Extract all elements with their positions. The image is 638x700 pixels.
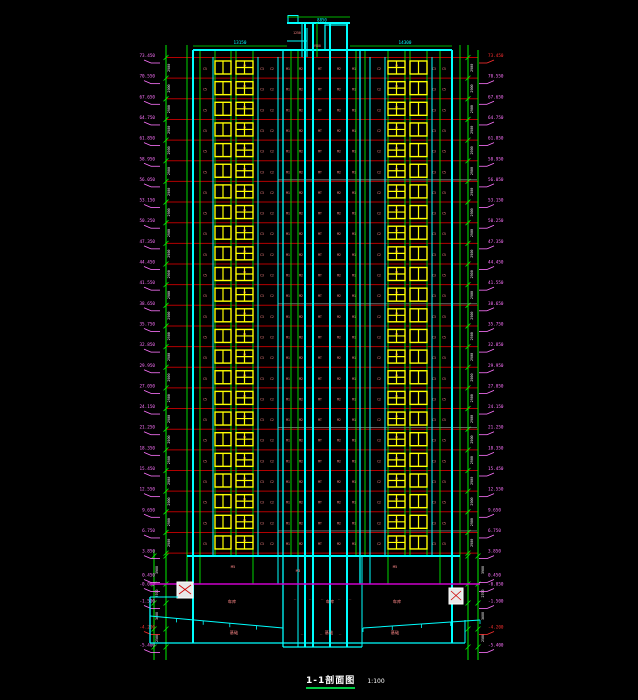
room-tag: M2 bbox=[299, 88, 303, 92]
room-tag: M1 bbox=[286, 356, 290, 360]
room-tag: C3 bbox=[432, 459, 436, 463]
window-tag: C4 bbox=[395, 167, 399, 171]
window-tag: C4 bbox=[395, 497, 399, 501]
room-tag: C3 bbox=[260, 129, 264, 133]
window-tag: C4 bbox=[243, 64, 247, 68]
room-tag: C3 bbox=[432, 315, 436, 319]
window-tag: C4 bbox=[395, 146, 399, 150]
level-value: 41.550 bbox=[139, 280, 155, 286]
room-tag: M1 bbox=[352, 150, 356, 154]
room-tag: M1 bbox=[286, 315, 290, 319]
bottom-dim-number: 3900 bbox=[481, 566, 485, 574]
room-tag: M2 bbox=[299, 459, 303, 463]
level-value: 12.550 bbox=[488, 487, 504, 493]
level-value: 18.350 bbox=[139, 445, 155, 451]
floor-dim-number: 2900 bbox=[167, 167, 171, 175]
room-tag: C3 bbox=[260, 294, 264, 298]
room-tag: C3 bbox=[260, 191, 264, 195]
window-tag: C4 bbox=[243, 146, 247, 150]
level-value: 64.750 bbox=[139, 115, 155, 121]
level-value: 32.850 bbox=[488, 342, 504, 348]
level-symbol bbox=[144, 328, 151, 331]
floor-dim-number: 2900 bbox=[470, 435, 474, 443]
level-symbol bbox=[487, 473, 494, 476]
room-tag: M2 bbox=[337, 88, 341, 92]
room-tag: C2 bbox=[377, 212, 381, 216]
room-tag: C5 bbox=[442, 501, 446, 505]
room-tag: M1 bbox=[352, 212, 356, 216]
tiny-tag: ·· bbox=[337, 597, 341, 601]
level-symbol bbox=[144, 143, 151, 146]
floor-dim-number: 2900 bbox=[167, 373, 171, 381]
level-value: 29.950 bbox=[139, 363, 155, 369]
window-tag: C4 bbox=[395, 249, 399, 253]
room-tag: MT bbox=[318, 294, 322, 298]
window-tag: C4 bbox=[243, 415, 247, 419]
room-tag: C5 bbox=[442, 418, 446, 422]
room-tag: C3 bbox=[260, 335, 264, 339]
roof-tag: 2900 bbox=[313, 44, 321, 48]
room-tag: M1 bbox=[286, 191, 290, 195]
basement-tag: 车库 bbox=[228, 598, 236, 605]
room-tag: C5 bbox=[442, 377, 446, 381]
level-symbol bbox=[144, 349, 151, 352]
room-tag: M1 bbox=[286, 335, 290, 339]
level-value: 70.550 bbox=[139, 74, 155, 80]
level-value: 15.450 bbox=[139, 466, 155, 472]
level-value: 21.250 bbox=[488, 425, 504, 431]
room-tag: C3 bbox=[260, 108, 264, 112]
room-tag: M2 bbox=[299, 418, 303, 422]
floor-dim-number: 2900 bbox=[470, 497, 474, 505]
room-tag: C2 bbox=[270, 170, 274, 174]
room-tag: M2 bbox=[299, 315, 303, 319]
floor-dim-number: 2900 bbox=[167, 518, 171, 526]
level-symbol bbox=[487, 225, 494, 228]
level-value: 0.450 bbox=[142, 573, 155, 579]
bottom-dim-number: 3600 bbox=[155, 612, 159, 620]
room-tag: M1 bbox=[352, 108, 356, 112]
room-tag: M2 bbox=[337, 542, 341, 546]
room-tag: C3 bbox=[432, 212, 436, 216]
room-tag: M1 bbox=[352, 67, 356, 71]
room-tag: M2 bbox=[337, 480, 341, 484]
level-value: 38.650 bbox=[139, 301, 155, 307]
room-tag: M1 bbox=[286, 521, 290, 525]
basement-tag: 基础 bbox=[391, 629, 399, 636]
room-tag: M2 bbox=[337, 439, 341, 443]
level-symbol bbox=[144, 246, 151, 249]
room-tag: C5 bbox=[442, 335, 446, 339]
level-value: 73.450 bbox=[139, 53, 155, 59]
basement-group: 车库车库车库基础基础基础················ bbox=[150, 597, 480, 647]
window-tag: C4 bbox=[243, 394, 247, 398]
level-value: 0.450 bbox=[488, 573, 501, 579]
room-tag: MT bbox=[318, 480, 322, 484]
level-symbol bbox=[144, 432, 151, 435]
elevator-overrun-box bbox=[325, 25, 347, 50]
room-tag: C5 bbox=[442, 521, 446, 525]
podium-tag: M5 bbox=[393, 564, 398, 569]
window-tag: C4 bbox=[395, 311, 399, 315]
room-tag: C2 bbox=[377, 459, 381, 463]
room-tag: MT bbox=[318, 501, 322, 505]
room-tag: C3 bbox=[432, 108, 436, 112]
level-symbol bbox=[144, 514, 151, 517]
window-tag: C4 bbox=[395, 353, 399, 357]
level-symbol bbox=[487, 390, 494, 393]
room-tag: MT bbox=[318, 274, 322, 278]
room-tag: C5 bbox=[442, 232, 446, 236]
floor-dim-number: 2900 bbox=[470, 64, 474, 72]
parapet-dim-text: 14300 bbox=[399, 40, 412, 46]
room-tag: M1 bbox=[352, 129, 356, 133]
room-tag: M1 bbox=[352, 418, 356, 422]
room-tag: M1 bbox=[286, 232, 290, 236]
room-tag: M2 bbox=[337, 501, 341, 505]
room-tag: M1 bbox=[352, 88, 356, 92]
level-value: 50.250 bbox=[139, 218, 155, 224]
room-tag: C5 bbox=[203, 480, 207, 484]
room-tag: C5 bbox=[203, 397, 207, 401]
window-tag: C4 bbox=[395, 208, 399, 212]
level-value: 24.150 bbox=[488, 404, 504, 410]
bottom-dim-number: 3900 bbox=[155, 566, 159, 574]
room-tag: M2 bbox=[337, 377, 341, 381]
room-tag: MT bbox=[318, 377, 322, 381]
room-tag: C3 bbox=[432, 335, 436, 339]
level-value: 58.950 bbox=[139, 156, 155, 162]
bottom-dim-number: 3600 bbox=[481, 612, 485, 620]
floor-dim-number: 2900 bbox=[167, 435, 171, 443]
room-tag: M2 bbox=[299, 170, 303, 174]
room-tag: C2 bbox=[270, 397, 274, 401]
room-tag: C5 bbox=[203, 108, 207, 112]
room-tag: C5 bbox=[203, 377, 207, 381]
grade-line bbox=[150, 616, 283, 628]
level-symbol bbox=[144, 81, 151, 84]
level-value: 6.750 bbox=[488, 528, 501, 534]
room-tag: C3 bbox=[260, 521, 264, 525]
floor-dim-number: 2900 bbox=[470, 291, 474, 299]
floor-dim-number: 2900 bbox=[167, 477, 171, 485]
room-tag: MT bbox=[318, 191, 322, 195]
room-tag: C3 bbox=[432, 501, 436, 505]
level-symbol bbox=[487, 81, 494, 84]
room-tag: MT bbox=[318, 212, 322, 216]
room-tag: C2 bbox=[270, 335, 274, 339]
room-tag: M1 bbox=[352, 253, 356, 257]
level-value: 38.650 bbox=[488, 301, 504, 307]
level-symbol bbox=[487, 60, 494, 63]
window-tag: C4 bbox=[395, 105, 399, 109]
tiny-tag: ·· bbox=[338, 632, 342, 636]
tiny-tag: ·· bbox=[300, 632, 304, 636]
room-tag: C3 bbox=[432, 480, 436, 484]
room-tag: M1 bbox=[286, 150, 290, 154]
room-tag: M1 bbox=[286, 67, 290, 71]
room-tag: C2 bbox=[377, 274, 381, 278]
roof-dim-text: 8850 bbox=[317, 18, 327, 23]
room-tag: M1 bbox=[286, 253, 290, 257]
room-tag: MT bbox=[318, 521, 322, 525]
room-tag: M1 bbox=[352, 170, 356, 174]
room-tag: C2 bbox=[270, 108, 274, 112]
floor-dim-number: 2900 bbox=[167, 208, 171, 216]
window-tag: C4 bbox=[395, 229, 399, 233]
level-symbol bbox=[487, 556, 494, 559]
room-tag: M1 bbox=[286, 170, 290, 174]
cad-drawing-canvas[interactable]: 2900290029002900290029002900290029002900… bbox=[0, 0, 638, 700]
room-tag: M2 bbox=[299, 542, 303, 546]
floor-dim-number: 2900 bbox=[470, 188, 474, 196]
window-tag: C4 bbox=[395, 270, 399, 274]
level-value: 29.950 bbox=[488, 363, 504, 369]
room-tag: C3 bbox=[260, 501, 264, 505]
room-tag: C2 bbox=[377, 397, 381, 401]
room-tag: C2 bbox=[270, 439, 274, 443]
room-tag: C2 bbox=[270, 315, 274, 319]
level-value: 12.550 bbox=[139, 487, 155, 493]
room-tag: C5 bbox=[203, 439, 207, 443]
level-value: -1.500 bbox=[139, 599, 155, 605]
room-tag: C2 bbox=[270, 459, 274, 463]
floor-dim-number: 2900 bbox=[470, 518, 474, 526]
floor-dim-number: 2900 bbox=[167, 312, 171, 320]
level-symbol bbox=[144, 411, 151, 414]
level-symbol bbox=[487, 287, 494, 290]
room-tag: C5 bbox=[442, 459, 446, 463]
floor-dim-number: 2900 bbox=[167, 394, 171, 402]
room-tag: M1 bbox=[286, 294, 290, 298]
room-tag: M1 bbox=[352, 274, 356, 278]
level-symbol bbox=[487, 308, 494, 311]
room-tag: M1 bbox=[352, 294, 356, 298]
level-markers-left: 73.45070.55067.65064.75061.85058.95056.0… bbox=[139, 53, 160, 653]
room-tag: MT bbox=[318, 232, 322, 236]
room-tag: MT bbox=[318, 315, 322, 319]
room-tag: C5 bbox=[203, 542, 207, 546]
room-tag: M1 bbox=[286, 439, 290, 443]
room-tag: M2 bbox=[299, 397, 303, 401]
room-tag: C5 bbox=[203, 150, 207, 154]
tiny-tag: ·· bbox=[320, 597, 324, 601]
level-symbol bbox=[144, 60, 151, 63]
level-value: 24.150 bbox=[139, 404, 155, 410]
level-symbol bbox=[487, 349, 494, 352]
floor-dim-number: 2900 bbox=[470, 84, 474, 92]
room-tag: C2 bbox=[377, 88, 381, 92]
room-tag: C3 bbox=[432, 170, 436, 174]
level-value: 64.750 bbox=[488, 115, 504, 121]
level-symbol bbox=[144, 390, 151, 393]
bottom-dim-number: 2500 bbox=[155, 634, 159, 642]
window-tag: C4 bbox=[395, 477, 399, 481]
floor-dim-number: 2900 bbox=[470, 250, 474, 258]
podium-tag: M5 bbox=[231, 564, 236, 569]
room-tag: C5 bbox=[442, 480, 446, 484]
room-tag: M2 bbox=[299, 501, 303, 505]
room-tag: C5 bbox=[442, 356, 446, 360]
level-value: 50.250 bbox=[488, 218, 504, 224]
level-symbol bbox=[144, 163, 151, 166]
room-tag: C5 bbox=[442, 212, 446, 216]
level-value: 21.250 bbox=[139, 425, 155, 431]
basement-tag: 基础 bbox=[230, 629, 238, 636]
room-tag: C3 bbox=[260, 274, 264, 278]
level-value: 47.350 bbox=[139, 239, 155, 245]
tiny-tag: ·· bbox=[293, 597, 297, 601]
room-tag: C2 bbox=[377, 150, 381, 154]
level-value: 18.350 bbox=[488, 445, 504, 451]
room-tag: C3 bbox=[260, 150, 264, 154]
level-value: 3.850 bbox=[142, 549, 155, 555]
level-symbol bbox=[487, 184, 494, 187]
level-symbol bbox=[487, 514, 494, 517]
room-tag: C5 bbox=[442, 397, 446, 401]
floor-dim-number: 2900 bbox=[167, 270, 171, 278]
room-tag: C5 bbox=[203, 315, 207, 319]
window-tag: C4 bbox=[395, 332, 399, 336]
level-symbol bbox=[144, 267, 151, 270]
level-value: 35.750 bbox=[139, 321, 155, 327]
tiny-tag: ·· bbox=[348, 597, 352, 601]
window-tag: C4 bbox=[243, 518, 247, 522]
room-tag: C3 bbox=[260, 212, 264, 216]
room-tag: C3 bbox=[260, 480, 264, 484]
room-tag: MT bbox=[318, 253, 322, 257]
level-value: 41.550 bbox=[488, 280, 504, 286]
room-tag: C3 bbox=[432, 67, 436, 71]
floor-dim-number: 2900 bbox=[167, 291, 171, 299]
room-tag: C5 bbox=[203, 253, 207, 257]
room-tag: C2 bbox=[377, 501, 381, 505]
level-symbol bbox=[487, 452, 494, 455]
floor-dim-number: 2900 bbox=[470, 146, 474, 154]
basement-tag: 车库 bbox=[393, 598, 401, 605]
room-tag: M1 bbox=[286, 480, 290, 484]
drawing-title-text: 1-1剖面图 bbox=[306, 673, 355, 689]
room-tag: M2 bbox=[299, 212, 303, 216]
room-tag: C3 bbox=[432, 418, 436, 422]
room-tag: C2 bbox=[377, 356, 381, 360]
room-tag: C2 bbox=[377, 418, 381, 422]
floor-dim-number: 2900 bbox=[167, 415, 171, 423]
room-tag: C5 bbox=[203, 88, 207, 92]
room-tag: M1 bbox=[286, 129, 290, 133]
room-tag: M2 bbox=[299, 439, 303, 443]
room-tag: C5 bbox=[203, 418, 207, 422]
room-tag: M2 bbox=[337, 397, 341, 401]
room-tag: M2 bbox=[337, 294, 341, 298]
window-tag: C4 bbox=[243, 208, 247, 212]
podium-group: M5M3M5 bbox=[150, 564, 480, 604]
level-symbol bbox=[487, 411, 494, 414]
room-tag: C3 bbox=[260, 67, 264, 71]
room-tag: C3 bbox=[432, 397, 436, 401]
bottom-dim-number: 2700 bbox=[481, 590, 485, 598]
room-tag: M2 bbox=[337, 108, 341, 112]
room-tag: C2 bbox=[270, 418, 274, 422]
room-tag: C2 bbox=[377, 108, 381, 112]
room-tag: C5 bbox=[442, 253, 446, 257]
room-tag: C5 bbox=[203, 67, 207, 71]
room-tag: M2 bbox=[299, 521, 303, 525]
floor-dim-number: 2900 bbox=[470, 477, 474, 485]
room-tag: C3 bbox=[432, 542, 436, 546]
room-tag: M1 bbox=[352, 397, 356, 401]
room-tag: C2 bbox=[377, 521, 381, 525]
floor-dim-number: 2900 bbox=[167, 497, 171, 505]
window-tag: C4 bbox=[243, 84, 247, 88]
floor-dim-number: 2900 bbox=[470, 167, 474, 175]
level-symbol bbox=[487, 246, 494, 249]
level-value: 9.650 bbox=[488, 507, 501, 513]
room-tag: M2 bbox=[299, 335, 303, 339]
room-tag: C3 bbox=[432, 191, 436, 195]
room-tag: C5 bbox=[442, 542, 446, 546]
room-tag: C3 bbox=[260, 88, 264, 92]
room-tag: M2 bbox=[299, 67, 303, 71]
room-tag: M2 bbox=[337, 129, 341, 133]
podium-tag: M3 bbox=[296, 568, 301, 573]
room-tag: C5 bbox=[203, 212, 207, 216]
room-tag: M1 bbox=[352, 501, 356, 505]
floor-dim-number: 2900 bbox=[470, 126, 474, 134]
level-value: 35.750 bbox=[488, 321, 504, 327]
floor-dim-number: 2900 bbox=[470, 229, 474, 237]
floor-dim-number: 2900 bbox=[167, 250, 171, 258]
level-symbol bbox=[487, 370, 494, 373]
room-tag: M1 bbox=[286, 397, 290, 401]
floor-dim-number: 2900 bbox=[167, 229, 171, 237]
room-tag: C2 bbox=[270, 150, 274, 154]
room-tag: C3 bbox=[260, 418, 264, 422]
room-tag: M2 bbox=[299, 356, 303, 360]
window-tag: C4 bbox=[243, 311, 247, 315]
room-tag: C2 bbox=[270, 253, 274, 257]
floor-dim-number: 2900 bbox=[167, 84, 171, 92]
room-tag: M1 bbox=[352, 232, 356, 236]
room-tag: C3 bbox=[432, 253, 436, 257]
level-symbol bbox=[144, 452, 151, 455]
room-tag: M1 bbox=[352, 315, 356, 319]
room-tag: C2 bbox=[377, 315, 381, 319]
room-tag: M1 bbox=[286, 501, 290, 505]
level-value: -0.050 bbox=[488, 582, 504, 588]
room-tag: M2 bbox=[337, 67, 341, 71]
window-tag: C4 bbox=[395, 84, 399, 88]
room-tag: M1 bbox=[286, 377, 290, 381]
room-tag: M2 bbox=[299, 274, 303, 278]
room-tag: M1 bbox=[286, 459, 290, 463]
room-tag: C5 bbox=[203, 274, 207, 278]
window-tag: C4 bbox=[243, 373, 247, 377]
room-tag: MT bbox=[318, 170, 322, 174]
room-tag: C3 bbox=[260, 315, 264, 319]
floor-dim-number: 2900 bbox=[167, 126, 171, 134]
room-tag: C2 bbox=[377, 232, 381, 236]
room-tag: M1 bbox=[286, 274, 290, 278]
room-tag: C2 bbox=[377, 129, 381, 133]
floor-dim-number: 2900 bbox=[167, 353, 171, 361]
window-tag: C4 bbox=[243, 456, 247, 460]
level-value: -1.500 bbox=[488, 599, 504, 605]
window-tag: C4 bbox=[243, 435, 247, 439]
level-value: 53.150 bbox=[488, 198, 504, 204]
room-tag: M2 bbox=[299, 232, 303, 236]
room-tag: M2 bbox=[337, 315, 341, 319]
